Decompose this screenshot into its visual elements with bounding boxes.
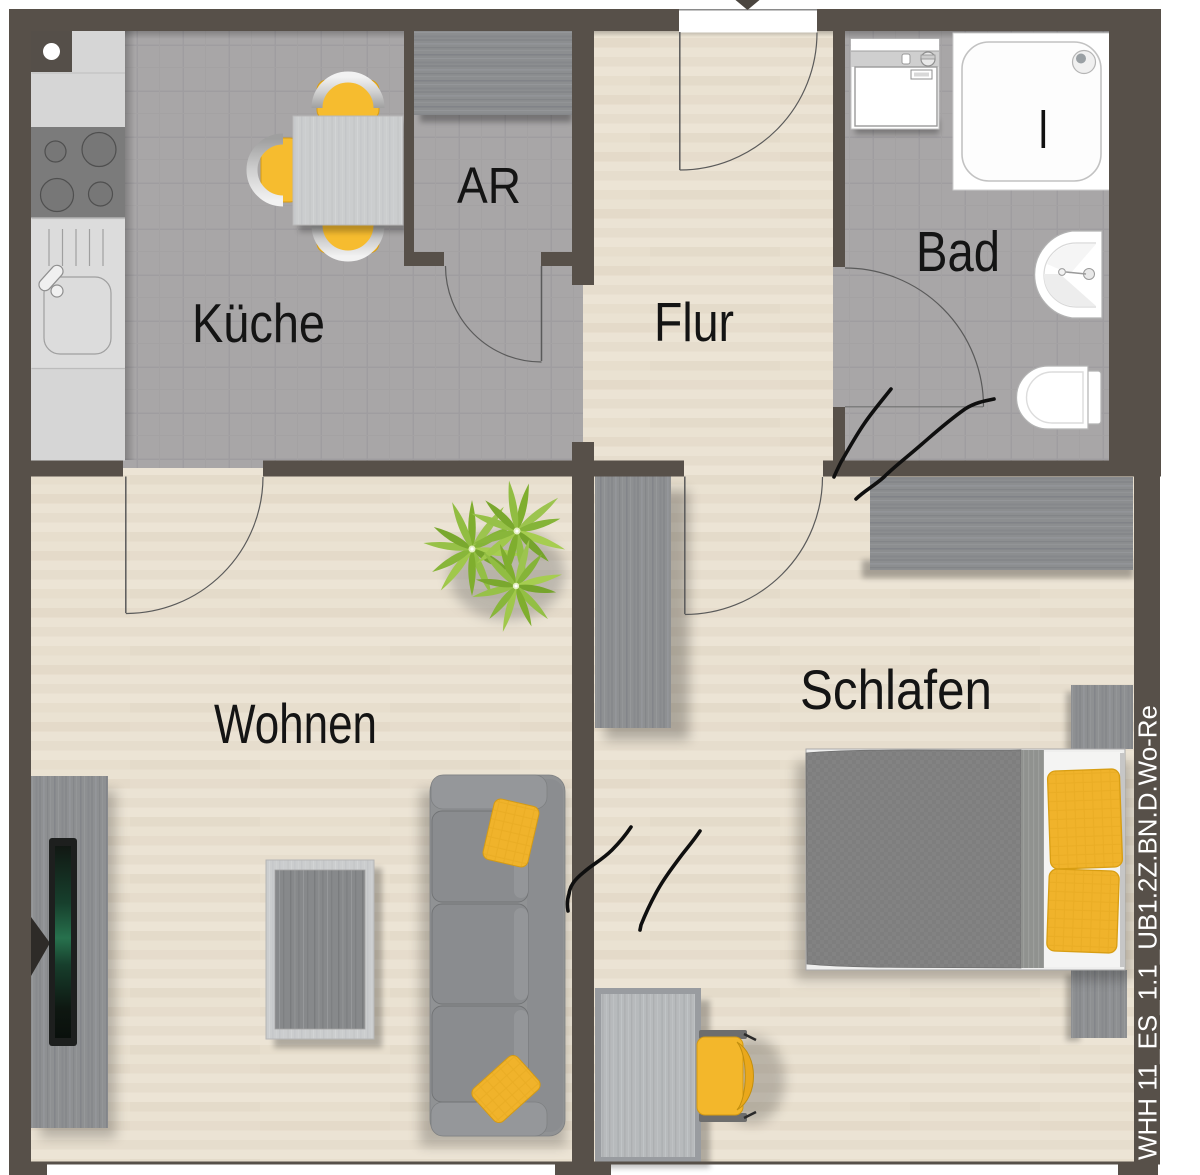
svg-text:Wohnen: Wohnen	[214, 692, 377, 755]
svg-text:Küche: Küche	[192, 292, 325, 354]
svg-text:Schlafen: Schlafen	[800, 658, 992, 721]
svg-text:AR: AR	[457, 157, 521, 214]
svg-text:Bad: Bad	[916, 220, 1000, 284]
svg-text:Flur: Flur	[654, 291, 734, 353]
svg-text:WHH 11_ES_1.1_UB1.2Z.BN.D.Wo-R: WHH 11_ES_1.1_UB1.2Z.BN.D.Wo-Re	[1133, 705, 1163, 1160]
